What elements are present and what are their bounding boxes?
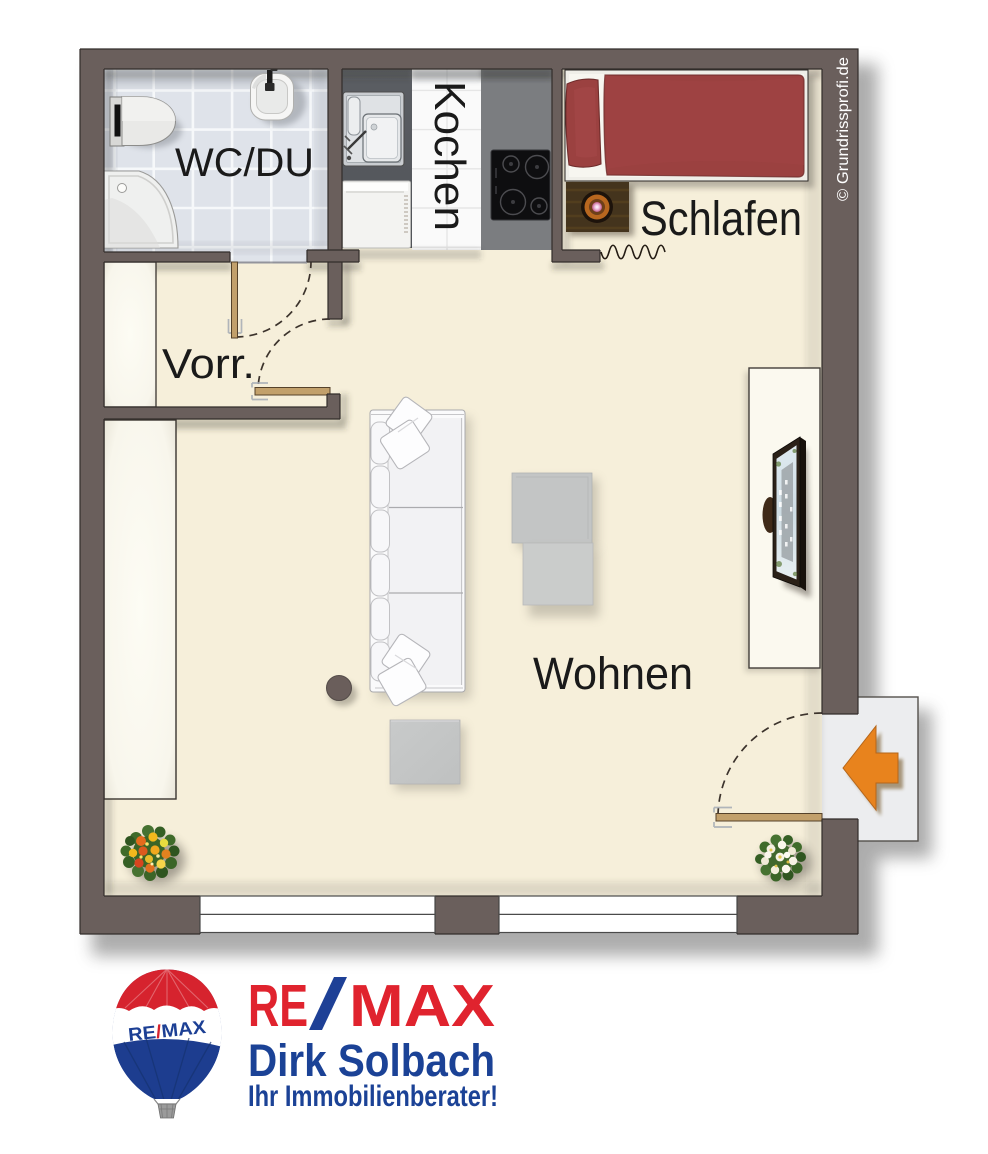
svg-text:© Grundrissprofi.de: © Grundrissprofi.de [835,57,852,201]
svg-text:Schlafen: Schlafen [640,193,802,246]
svg-text:Kochen: Kochen [425,81,474,231]
svg-text:Ihr Immobilienberater!: Ihr Immobilienberater! [248,1080,498,1113]
svg-text:Wohnen: Wohnen [533,648,693,699]
svg-text:RE: RE [248,974,308,1040]
svg-text:Vorr.: Vorr. [162,340,255,387]
svg-text:WC/DU: WC/DU [175,141,314,185]
svg-text:MAX: MAX [349,973,495,1039]
svg-text:Dirk Solbach: Dirk Solbach [248,1035,495,1086]
